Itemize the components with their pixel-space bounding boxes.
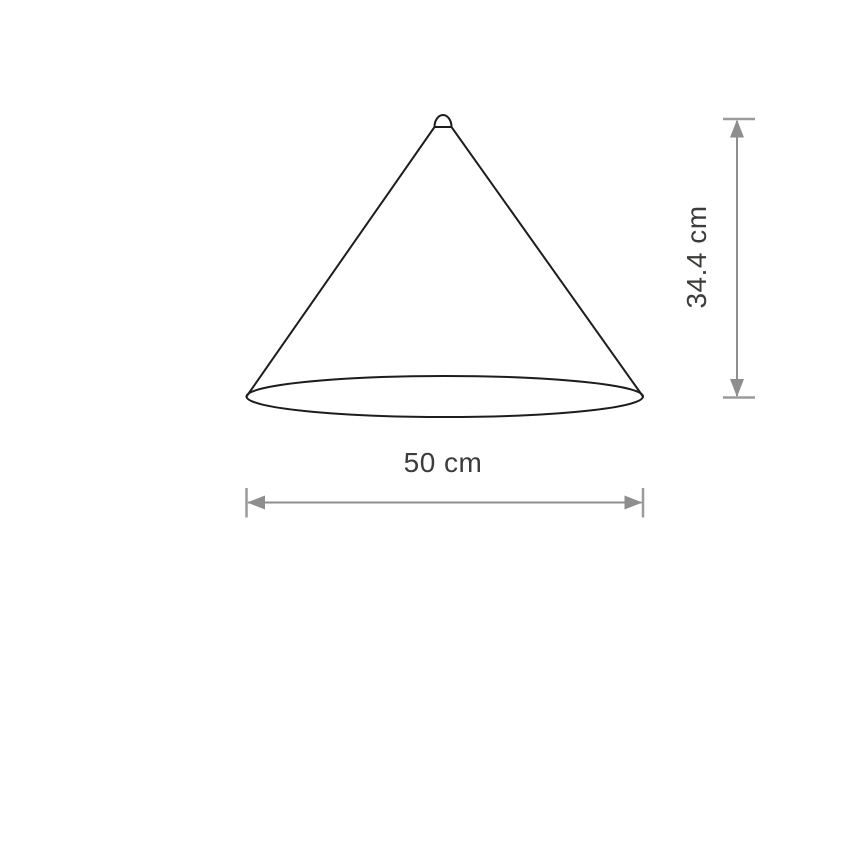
- width-dimension-label: 50 cm: [404, 447, 483, 479]
- cone-apex-cap: [435, 115, 452, 127]
- dimension-diagram: 50 cm 34.4 cm: [0, 0, 868, 868]
- cone-right-edge: [452, 127, 644, 397]
- height-dimension-label: 34.4 cm: [681, 205, 713, 308]
- cone-shape: [247, 115, 644, 417]
- cone-base-ellipse: [247, 376, 644, 417]
- height-arrow-up-icon: [730, 120, 744, 138]
- cone-drawing: [0, 0, 868, 868]
- cone-left-edge: [247, 127, 435, 397]
- width-dimension: [247, 488, 644, 518]
- height-arrow-down-icon: [730, 379, 744, 397]
- width-arrow-left-icon: [247, 496, 265, 510]
- width-arrow-right-icon: [625, 496, 643, 510]
- height-dimension: [723, 119, 755, 398]
